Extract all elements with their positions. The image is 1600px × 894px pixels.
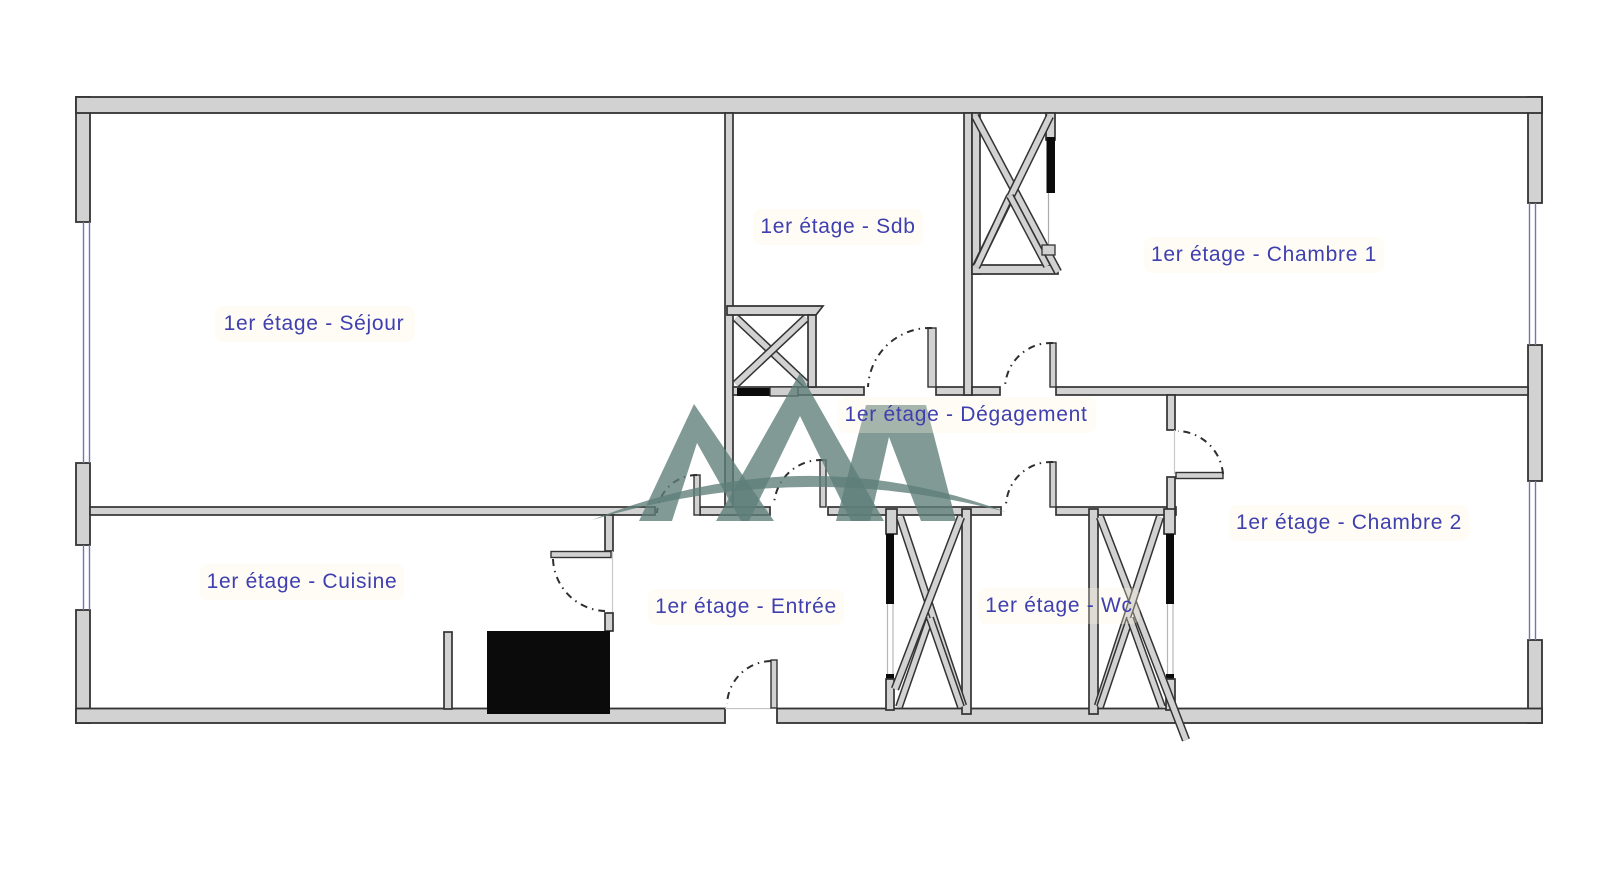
svg-text:1er étage - Chambre 2: 1er étage - Chambre 2 bbox=[1236, 511, 1462, 534]
svg-text:1er étage - Chambre 1: 1er étage - Chambre 1 bbox=[1151, 243, 1377, 266]
svg-text:1er étage - Cuisine: 1er étage - Cuisine bbox=[207, 570, 398, 593]
svg-text:1er étage - Séjour: 1er étage - Séjour bbox=[224, 312, 405, 335]
svg-text:1er étage - Dégagement: 1er étage - Dégagement bbox=[844, 403, 1087, 426]
svg-text:1er étage - Wc: 1er étage - Wc bbox=[985, 594, 1133, 617]
svg-text:1er étage - Sdb: 1er étage - Sdb bbox=[760, 215, 915, 238]
svg-text:1er étage - Entrée: 1er étage - Entrée bbox=[655, 595, 837, 618]
